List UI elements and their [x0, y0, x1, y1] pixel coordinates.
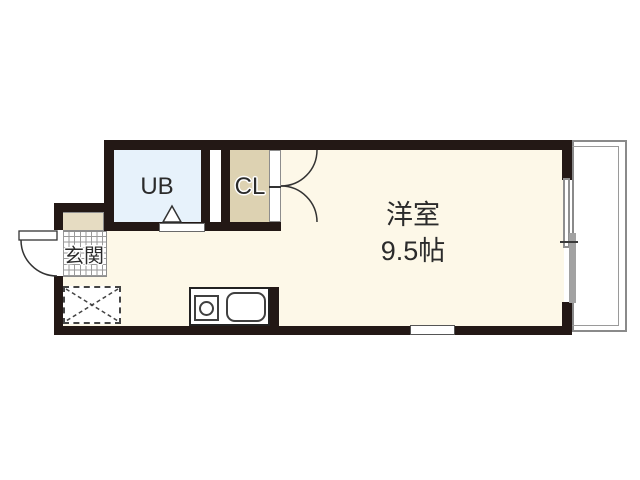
sink-icon: [226, 292, 266, 322]
wall-kitchen-stub: [270, 287, 279, 326]
main-room-size: 9.5帖: [381, 233, 446, 269]
wall-closet-left: [221, 150, 230, 222]
unit-bath-label: UB: [140, 173, 173, 201]
balcony-inner-line: [572, 146, 619, 326]
entrance-label: 玄関: [64, 240, 104, 269]
wall-entrance-top: [54, 203, 114, 212]
wall-left-upper: [104, 140, 114, 231]
main-room-label: 洋室 9.5帖: [381, 197, 446, 269]
stove-burner-icon: [199, 301, 214, 316]
pipe-space-gap: [210, 150, 221, 222]
entrance-door-swing-icon: [19, 231, 57, 276]
shoe-cabinet: [62, 212, 104, 231]
main-room-floor-lower: [62, 231, 564, 326]
floor-plan: UB CL 玄関 洋室 9.5帖: [0, 0, 640, 480]
closet-label: CL: [235, 173, 266, 201]
entrance-door-opening: [54, 230, 63, 276]
wall-bottom: [54, 326, 572, 335]
bottom-window: [410, 325, 455, 335]
wall-right-top: [562, 140, 572, 180]
sliding-window-pane-lower: [569, 233, 576, 303]
wall-right-bottom: [562, 302, 572, 335]
closet-doorway: [269, 150, 281, 222]
unit-bath-door-opening: [159, 223, 205, 232]
wall-unit-bath-right: [201, 150, 210, 222]
sliding-window-meeting-tick: [560, 241, 578, 243]
refrigerator-space: [63, 286, 121, 324]
main-room-name: 洋室: [381, 197, 446, 233]
wall-top: [104, 140, 572, 150]
